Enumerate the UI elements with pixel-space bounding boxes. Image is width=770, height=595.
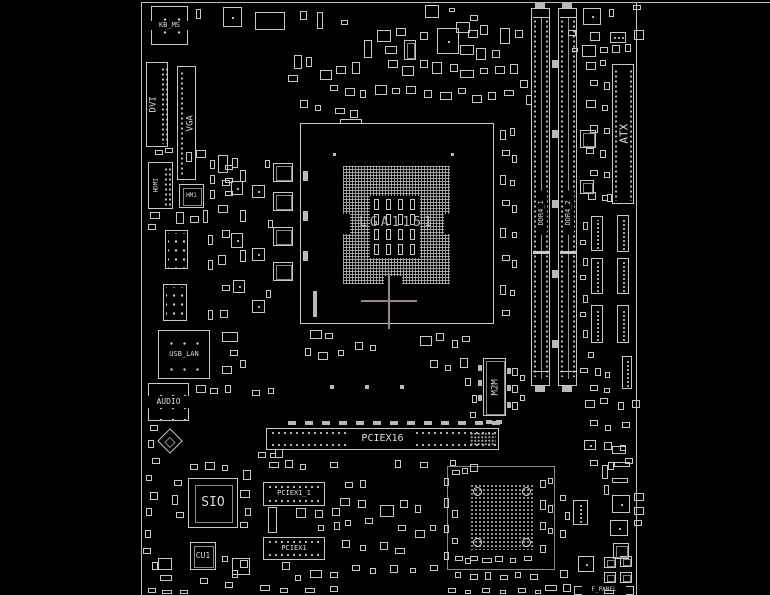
component bbox=[158, 558, 172, 570]
component bbox=[252, 390, 260, 396]
component bbox=[512, 232, 517, 238]
component bbox=[492, 50, 500, 58]
component bbox=[245, 508, 251, 516]
component bbox=[600, 60, 606, 66]
component bbox=[365, 518, 373, 524]
qfn-chip bbox=[231, 181, 243, 195]
component bbox=[560, 495, 566, 501]
pad bbox=[478, 395, 482, 401]
component bbox=[208, 260, 213, 270]
qfn-dot bbox=[258, 306, 260, 308]
component bbox=[305, 348, 311, 356]
component bbox=[398, 525, 406, 531]
component bbox=[545, 585, 557, 591]
component bbox=[190, 216, 199, 223]
choke-inner bbox=[276, 195, 292, 210]
usb-lan-port-label: USB_LAN bbox=[159, 350, 208, 360]
component bbox=[210, 388, 218, 394]
choke-inner bbox=[276, 265, 292, 280]
component bbox=[633, 5, 641, 10]
component bbox=[240, 490, 250, 498]
pciex1-slot-1-label: PCIEX1_1 bbox=[267, 489, 322, 499]
component bbox=[258, 452, 266, 458]
component bbox=[420, 60, 428, 68]
edge-header-3 bbox=[617, 258, 629, 294]
component bbox=[518, 588, 526, 593]
component bbox=[338, 350, 344, 356]
edge-header-0 bbox=[591, 216, 603, 251]
component bbox=[275, 449, 283, 458]
component bbox=[332, 508, 340, 516]
choke-inner bbox=[607, 575, 615, 582]
component bbox=[500, 590, 506, 594]
component bbox=[355, 342, 363, 350]
component bbox=[512, 402, 518, 410]
component bbox=[306, 57, 312, 67]
pad bbox=[478, 380, 482, 386]
component bbox=[470, 15, 478, 21]
qfn-dot bbox=[237, 188, 239, 190]
component bbox=[320, 70, 332, 80]
component bbox=[502, 255, 510, 261]
component bbox=[341, 20, 348, 25]
component bbox=[632, 400, 640, 408]
component bbox=[488, 92, 496, 100]
component bbox=[512, 155, 517, 163]
edge-header-7 bbox=[573, 500, 588, 525]
component bbox=[634, 507, 644, 515]
component bbox=[310, 570, 322, 578]
component bbox=[360, 480, 366, 488]
component bbox=[335, 108, 345, 114]
component bbox=[510, 558, 516, 563]
choke-inner bbox=[583, 133, 595, 147]
component bbox=[255, 12, 285, 30]
component bbox=[572, 48, 578, 52]
component bbox=[315, 105, 321, 111]
component bbox=[500, 575, 508, 580]
component bbox=[634, 30, 644, 40]
component bbox=[218, 155, 228, 173]
socket-pad bbox=[398, 199, 403, 210]
component bbox=[186, 152, 192, 162]
cpu-socket-notch-2 bbox=[384, 276, 402, 284]
component bbox=[445, 365, 451, 371]
component bbox=[485, 572, 491, 580]
component bbox=[600, 47, 608, 53]
choke-inner bbox=[276, 166, 292, 181]
component bbox=[176, 212, 184, 224]
pad bbox=[451, 153, 454, 156]
component bbox=[458, 88, 466, 94]
component bbox=[520, 375, 525, 381]
component bbox=[243, 470, 251, 480]
component bbox=[560, 570, 568, 578]
hm1-chip-label: HM1 bbox=[179, 192, 203, 200]
qfn-chip bbox=[583, 8, 601, 25]
board-top-edge bbox=[141, 2, 770, 3]
component bbox=[222, 180, 230, 186]
component bbox=[450, 64, 458, 72]
component bbox=[269, 462, 279, 468]
socket-pad bbox=[374, 199, 379, 210]
component bbox=[300, 464, 306, 470]
component bbox=[342, 540, 350, 548]
edge-header-1 bbox=[617, 215, 629, 252]
cpu-socket-notch-1 bbox=[444, 214, 457, 234]
socket-pad bbox=[386, 244, 391, 255]
component bbox=[222, 230, 230, 238]
component bbox=[602, 195, 608, 201]
component bbox=[285, 460, 293, 468]
component bbox=[634, 520, 642, 526]
pciex16-pad bbox=[305, 421, 313, 425]
pciex1-slot-2-pins-bottom bbox=[267, 553, 323, 557]
component bbox=[390, 565, 398, 573]
pad bbox=[507, 368, 511, 374]
component bbox=[460, 70, 474, 78]
component bbox=[450, 460, 456, 466]
component bbox=[455, 556, 463, 561]
component bbox=[510, 290, 515, 296]
sio-chip-label: SIO bbox=[192, 494, 233, 512]
component bbox=[218, 255, 226, 265]
component bbox=[515, 30, 523, 38]
component bbox=[420, 462, 428, 468]
board-crosshair-v bbox=[388, 273, 390, 329]
pad bbox=[303, 251, 308, 261]
component bbox=[512, 368, 518, 376]
component bbox=[436, 333, 444, 341]
component bbox=[205, 462, 215, 470]
component bbox=[232, 158, 238, 168]
edge-header-ticks bbox=[614, 37, 624, 39]
qfn-chip bbox=[223, 7, 242, 27]
component bbox=[526, 95, 532, 105]
component bbox=[580, 240, 586, 245]
choke-inner bbox=[623, 575, 631, 582]
component bbox=[425, 5, 439, 18]
component bbox=[470, 556, 478, 561]
usb-header-2 bbox=[163, 284, 187, 321]
pciex16-pad bbox=[441, 421, 449, 425]
component bbox=[634, 493, 644, 501]
component bbox=[470, 574, 478, 580]
component bbox=[317, 12, 323, 29]
component bbox=[370, 345, 376, 351]
pad bbox=[303, 211, 308, 221]
component bbox=[449, 8, 455, 12]
component bbox=[612, 446, 626, 454]
component bbox=[504, 90, 514, 96]
usb-header-1 bbox=[165, 230, 188, 269]
edge-header-ticks bbox=[597, 309, 599, 341]
socket-pad bbox=[398, 244, 403, 255]
component bbox=[502, 200, 510, 206]
component bbox=[586, 148, 594, 154]
component bbox=[345, 88, 355, 96]
component bbox=[196, 9, 201, 19]
component bbox=[510, 128, 515, 136]
edge-header-4 bbox=[591, 305, 603, 343]
component bbox=[415, 530, 425, 538]
pch-corner-mark bbox=[522, 538, 531, 547]
pad bbox=[552, 200, 558, 208]
edge-header-ticks bbox=[627, 360, 629, 387]
pciex16-pad bbox=[492, 421, 500, 425]
component bbox=[232, 558, 250, 575]
qfn-chip bbox=[437, 28, 459, 54]
component bbox=[586, 100, 596, 108]
component bbox=[218, 205, 228, 213]
ddr4-slot-1-label: DDR4_1 bbox=[537, 191, 547, 235]
component bbox=[190, 464, 198, 470]
pch-corner-mark bbox=[473, 538, 482, 547]
component bbox=[305, 588, 315, 593]
component bbox=[540, 522, 546, 530]
component bbox=[230, 350, 238, 356]
component bbox=[604, 388, 610, 393]
board-diagram: KB_MSDVIVGAHDMIHM1USB_LANAUDIOSIOCU1PCIE… bbox=[0, 0, 770, 595]
pciex1-slot-1-pins-bottom bbox=[267, 499, 323, 503]
component bbox=[465, 590, 471, 594]
component bbox=[360, 545, 366, 551]
pad bbox=[507, 402, 511, 408]
component bbox=[605, 372, 610, 378]
component bbox=[210, 175, 215, 184]
component bbox=[565, 512, 570, 520]
component bbox=[172, 495, 178, 505]
component bbox=[340, 119, 362, 124]
ddr4-slot-2-key bbox=[560, 251, 577, 254]
vga-port-label: VGA bbox=[185, 107, 198, 139]
choke bbox=[604, 572, 616, 583]
component bbox=[203, 210, 208, 223]
component bbox=[444, 478, 449, 486]
component bbox=[222, 465, 228, 471]
ddr4-slot-2-key bbox=[560, 371, 577, 372]
component bbox=[240, 360, 246, 368]
pciex16-pad bbox=[288, 421, 296, 425]
component bbox=[268, 507, 277, 533]
component bbox=[583, 222, 588, 230]
component bbox=[352, 62, 360, 74]
component bbox=[330, 572, 338, 578]
pch-corner-mark bbox=[522, 487, 531, 496]
qfn-chip bbox=[584, 440, 596, 450]
component bbox=[625, 44, 631, 52]
component bbox=[583, 330, 588, 338]
choke bbox=[613, 543, 629, 559]
qfn-dot bbox=[590, 445, 592, 447]
component bbox=[455, 572, 461, 578]
atx-connector-label: ATX bbox=[616, 116, 631, 152]
component bbox=[174, 480, 182, 486]
qfn-dot bbox=[592, 16, 594, 18]
qfn-dot bbox=[258, 191, 260, 193]
component bbox=[540, 500, 546, 510]
component bbox=[300, 100, 308, 108]
edge-header-ticks bbox=[623, 262, 625, 292]
component bbox=[468, 30, 478, 38]
component bbox=[622, 422, 630, 428]
cpu-socket-label: LGA1151 bbox=[356, 214, 439, 232]
component bbox=[196, 385, 206, 393]
qfn-dot bbox=[237, 240, 239, 242]
component bbox=[470, 412, 476, 418]
usb-header-1-pins bbox=[168, 233, 187, 268]
choke bbox=[620, 572, 632, 583]
edge-header-6 bbox=[622, 356, 632, 389]
pch-bga-chip bbox=[470, 484, 534, 550]
component bbox=[150, 425, 158, 431]
component bbox=[452, 470, 460, 475]
component bbox=[548, 505, 553, 513]
component bbox=[222, 332, 238, 342]
pciex1-slot-2-label: PCIEX1 bbox=[272, 544, 316, 554]
pad bbox=[400, 385, 404, 389]
component bbox=[500, 130, 506, 140]
edge-header-ticks bbox=[597, 220, 599, 249]
pad bbox=[313, 291, 317, 317]
component bbox=[162, 590, 172, 594]
edge-header-8 bbox=[610, 32, 626, 43]
pad bbox=[552, 130, 558, 138]
component bbox=[415, 505, 421, 513]
component bbox=[364, 40, 372, 58]
qfn-chip bbox=[578, 556, 594, 572]
component bbox=[482, 558, 492, 563]
edge-header-2 bbox=[591, 258, 603, 294]
choke-inner bbox=[607, 560, 615, 567]
component bbox=[452, 340, 458, 348]
pciex16-pad bbox=[322, 421, 330, 425]
component bbox=[444, 552, 449, 560]
pciex16-pad bbox=[390, 421, 398, 425]
qfn-dot bbox=[619, 528, 621, 530]
component bbox=[145, 530, 151, 538]
component bbox=[200, 578, 208, 584]
component bbox=[590, 385, 598, 391]
buzzer bbox=[157, 428, 182, 453]
qfn-dot bbox=[448, 41, 450, 43]
qfn-dot bbox=[239, 286, 241, 288]
choke bbox=[273, 192, 293, 211]
ddr4-slot-2-tab-bottom bbox=[562, 386, 572, 392]
component bbox=[520, 80, 528, 88]
component bbox=[208, 310, 213, 320]
hdmi-port-label: HDMI bbox=[153, 171, 161, 200]
choke bbox=[404, 40, 416, 60]
component bbox=[540, 480, 546, 488]
component bbox=[440, 92, 452, 100]
component bbox=[472, 395, 477, 403]
component bbox=[590, 460, 598, 466]
component bbox=[240, 250, 246, 262]
component bbox=[452, 510, 458, 518]
component bbox=[222, 556, 228, 562]
component bbox=[318, 352, 328, 360]
component bbox=[268, 388, 274, 394]
component bbox=[345, 520, 351, 526]
component bbox=[583, 258, 588, 266]
component bbox=[377, 30, 391, 42]
pciex16-pad bbox=[458, 421, 466, 425]
kb-ms-port-label: KB_MS bbox=[151, 21, 189, 31]
component bbox=[500, 175, 506, 185]
ddr4-slot-1-key bbox=[533, 371, 550, 372]
component bbox=[604, 128, 610, 134]
component bbox=[460, 358, 468, 368]
qfn-dot bbox=[621, 504, 623, 506]
socket-pad bbox=[410, 199, 415, 210]
component bbox=[500, 285, 506, 295]
choke-inner bbox=[407, 43, 415, 59]
choke bbox=[580, 130, 596, 148]
pciex16-slot-retention bbox=[470, 432, 496, 446]
component bbox=[180, 590, 188, 594]
component bbox=[380, 542, 388, 550]
component bbox=[502, 150, 510, 156]
pciex16-pad bbox=[356, 421, 364, 425]
component bbox=[430, 565, 438, 571]
component bbox=[420, 336, 432, 346]
pciex16-pad bbox=[339, 421, 347, 425]
component bbox=[225, 582, 233, 588]
component bbox=[462, 468, 468, 474]
component bbox=[350, 110, 358, 118]
component bbox=[452, 538, 458, 544]
choke bbox=[273, 163, 293, 182]
component bbox=[424, 90, 432, 98]
component bbox=[345, 482, 353, 488]
pad bbox=[365, 385, 369, 389]
component bbox=[380, 505, 394, 517]
component bbox=[150, 492, 158, 500]
component bbox=[222, 285, 230, 291]
component bbox=[510, 64, 518, 74]
choke-inner bbox=[583, 183, 593, 193]
qfn-chip bbox=[252, 185, 265, 198]
pad bbox=[330, 385, 334, 389]
ddr4-slot-1-key bbox=[533, 251, 550, 254]
component bbox=[512, 205, 517, 213]
component bbox=[618, 402, 624, 410]
component bbox=[548, 478, 553, 484]
component bbox=[360, 90, 366, 98]
component bbox=[520, 395, 525, 401]
component bbox=[600, 398, 608, 404]
component bbox=[196, 150, 206, 158]
component bbox=[568, 30, 576, 36]
component bbox=[430, 525, 436, 531]
audio-port-label: AUDIO bbox=[148, 396, 190, 407]
component bbox=[604, 82, 610, 90]
component bbox=[370, 568, 376, 574]
component bbox=[444, 498, 449, 508]
component bbox=[210, 190, 215, 199]
component bbox=[500, 228, 506, 238]
component bbox=[296, 508, 306, 518]
edge-header-5 bbox=[617, 305, 629, 343]
component bbox=[265, 160, 270, 168]
component bbox=[280, 588, 288, 593]
m2m-connector-label: M2M bbox=[489, 371, 502, 403]
component bbox=[358, 500, 366, 508]
pad bbox=[333, 153, 336, 156]
component bbox=[590, 420, 598, 426]
component bbox=[395, 548, 405, 554]
